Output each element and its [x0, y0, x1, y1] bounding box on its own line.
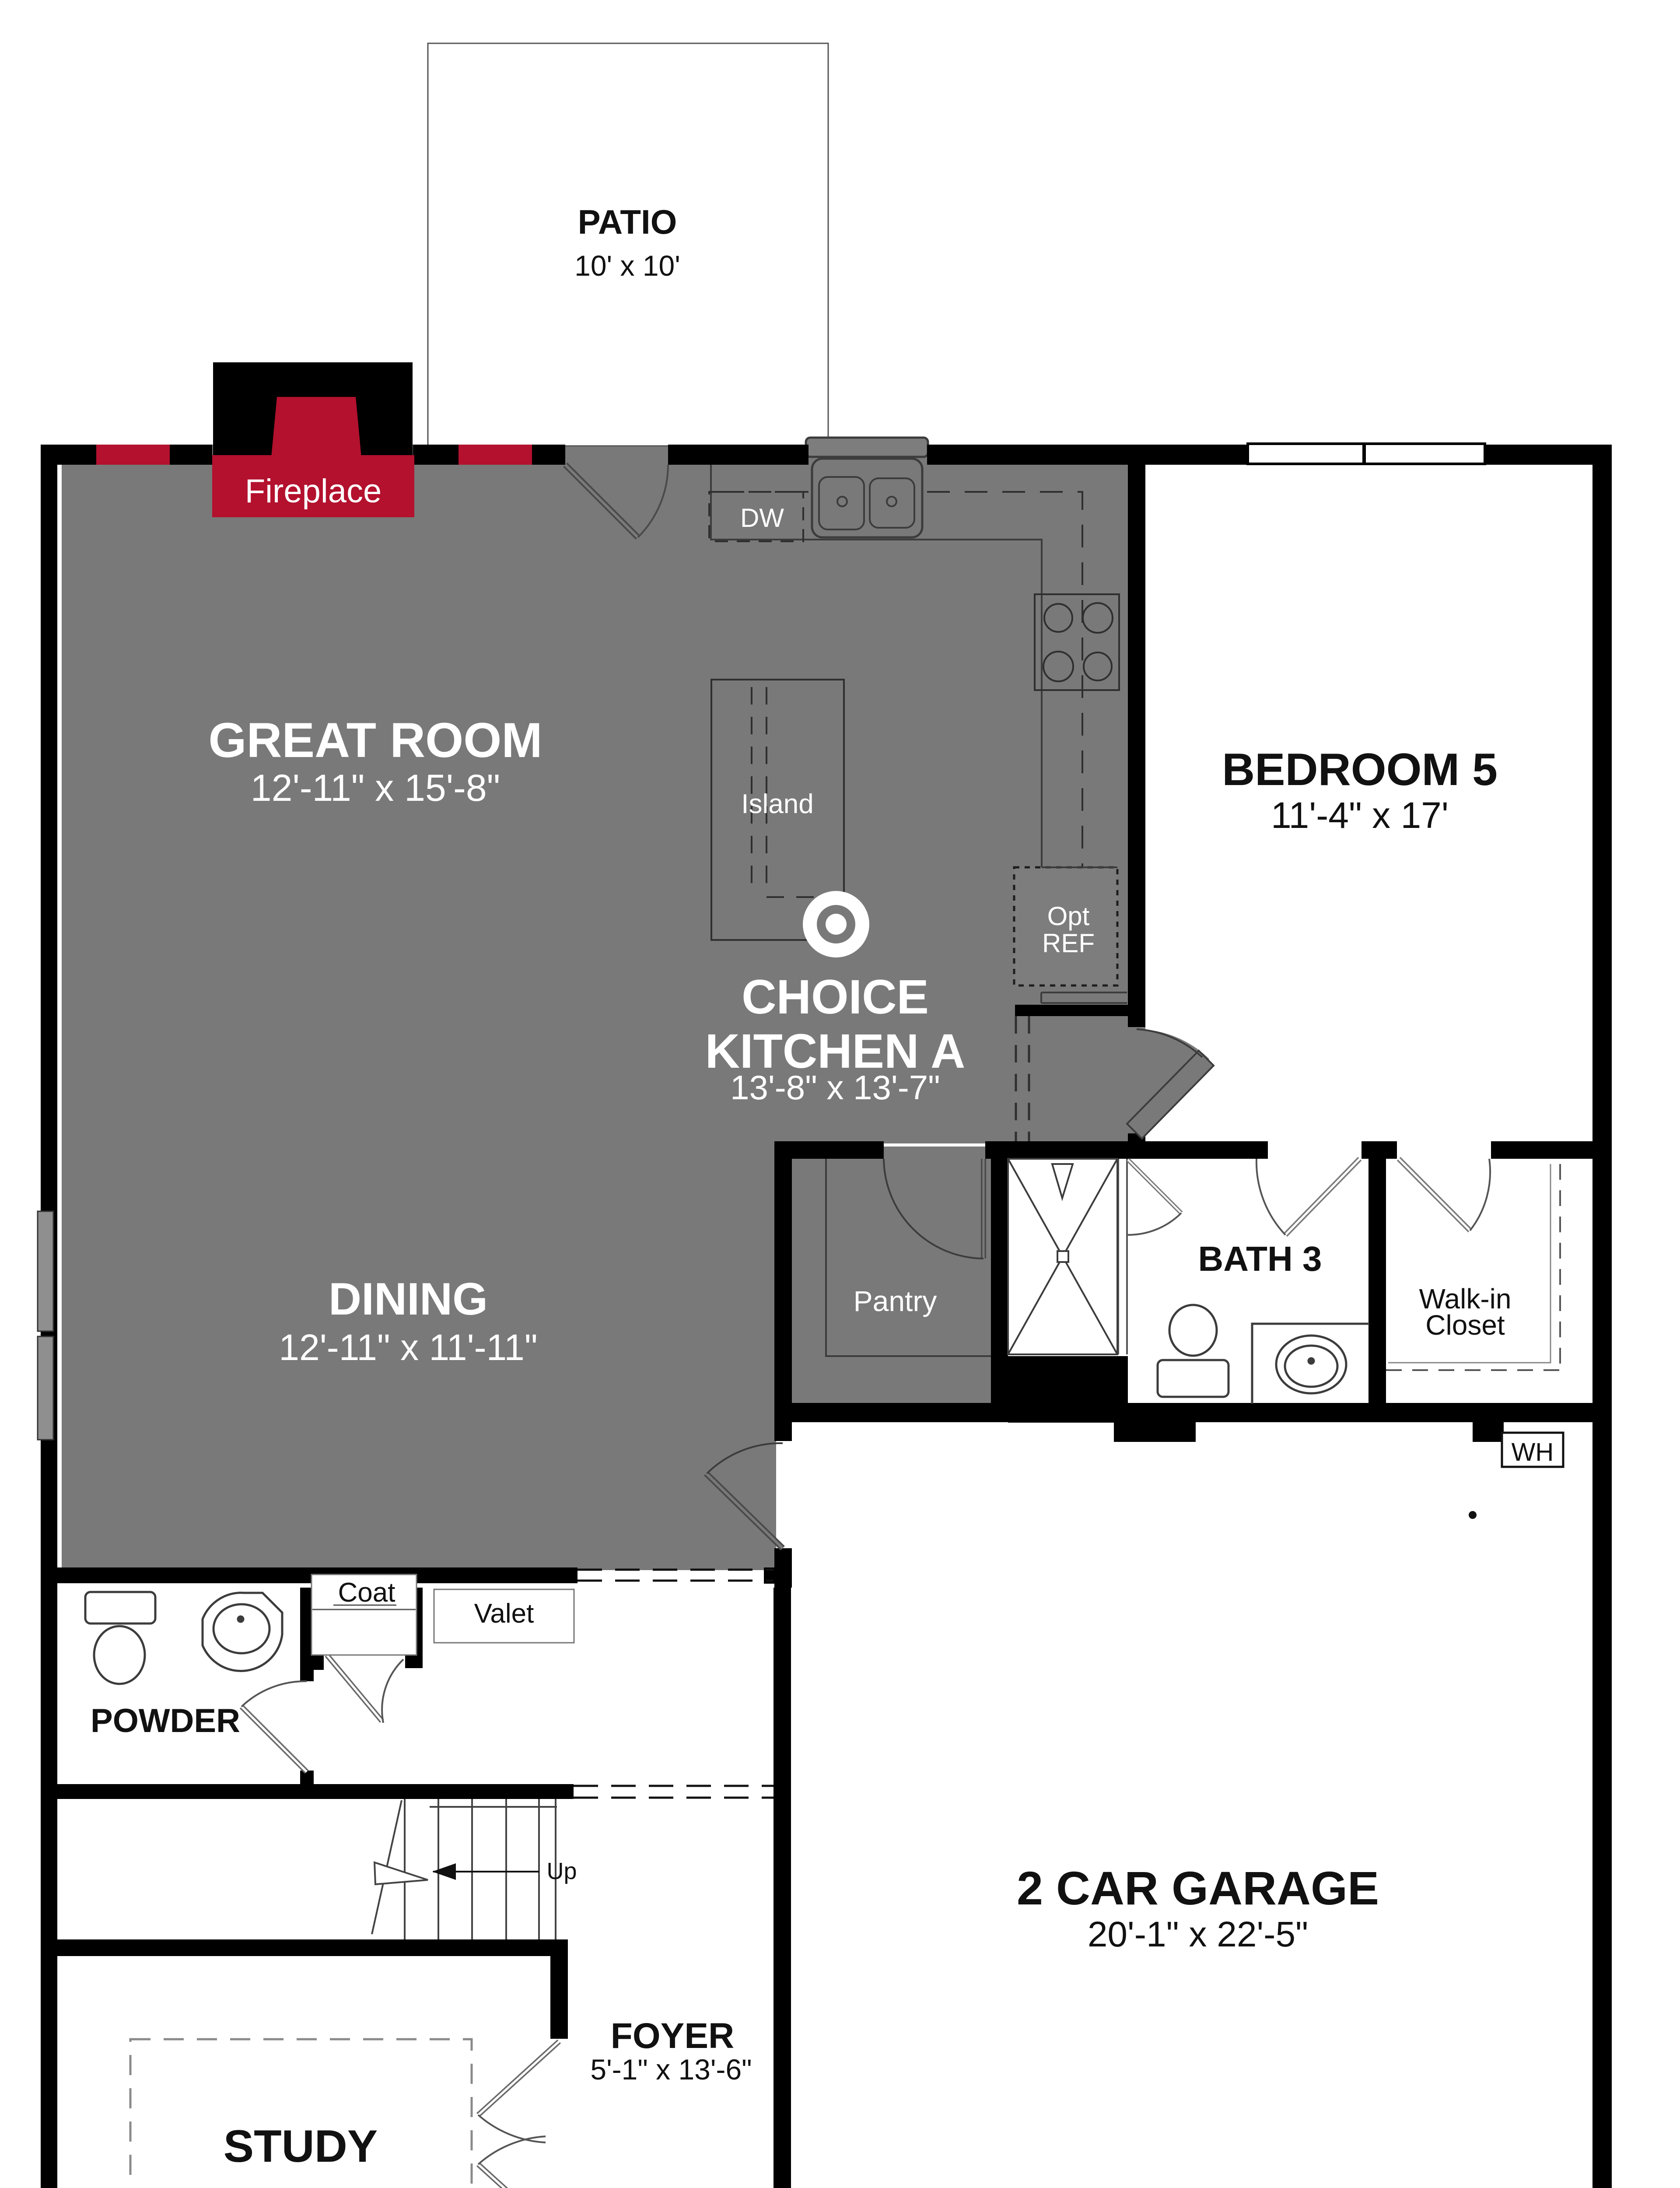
- svg-text:POWDER: POWDER: [91, 1702, 240, 1739]
- svg-text:CHOICE: CHOICE: [742, 970, 929, 1024]
- svg-text:STUDY: STUDY: [224, 2121, 378, 2172]
- svg-text:Coat: Coat: [338, 1578, 395, 1608]
- svg-text:BEDROOM 5: BEDROOM 5: [1222, 744, 1498, 795]
- svg-text:Opt: Opt: [1047, 901, 1090, 931]
- svg-text:DINING: DINING: [329, 1274, 488, 1325]
- svg-text:Up: Up: [546, 1858, 577, 1884]
- svg-text:REF: REF: [1042, 929, 1095, 958]
- svg-text:10' x 10': 10' x 10': [574, 249, 680, 282]
- svg-text:BATH 3: BATH 3: [1198, 1239, 1322, 1278]
- svg-text:13'-8" x 13'-7": 13'-8" x 13'-7": [730, 1068, 940, 1107]
- svg-text:5'-1" x 13'-6": 5'-1" x 13'-6": [590, 2053, 752, 2086]
- svg-text:11'-4" x 17': 11'-4" x 17': [1271, 795, 1449, 836]
- svg-text:20'-1" x 22'-5": 20'-1" x 22'-5": [1088, 1914, 1308, 1954]
- svg-text:12'-11" x 15'-8": 12'-11" x 15'-8": [251, 767, 500, 809]
- svg-text:PATIO: PATIO: [578, 203, 677, 241]
- svg-text:FOYER: FOYER: [611, 2016, 734, 2056]
- svg-text:GREAT ROOM: GREAT ROOM: [208, 713, 542, 768]
- svg-text:Pantry: Pantry: [854, 1285, 937, 1317]
- svg-text:12'-11" x 11'-11": 12'-11" x 11'-11": [279, 1327, 537, 1368]
- svg-text:Closet: Closet: [1425, 1309, 1505, 1341]
- svg-text:Valet: Valet: [474, 1599, 534, 1629]
- svg-text:WH: WH: [1512, 1438, 1554, 1466]
- svg-text:Fireplace: Fireplace: [245, 473, 382, 510]
- svg-text:2 CAR GARAGE: 2 CAR GARAGE: [1017, 1862, 1379, 1914]
- svg-text:Island: Island: [741, 789, 813, 819]
- svg-text:DW: DW: [740, 503, 784, 533]
